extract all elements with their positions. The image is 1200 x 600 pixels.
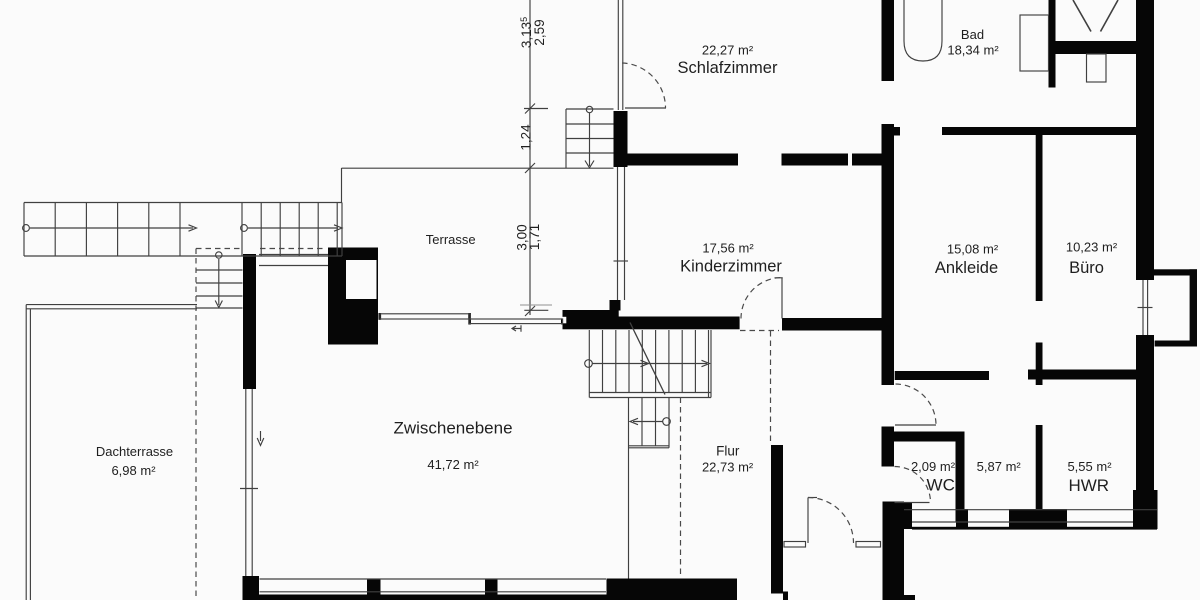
svg-text:2,09 m²: 2,09 m² bbox=[911, 459, 956, 474]
svg-text:Terrasse: Terrasse bbox=[426, 232, 476, 247]
svg-text:6,98 m²: 6,98 m² bbox=[111, 463, 156, 478]
svg-text:22,73 m²: 22,73 m² bbox=[702, 459, 754, 474]
svg-text:Dachterrasse: Dachterrasse bbox=[96, 444, 173, 459]
svg-text:10,23 m²: 10,23 m² bbox=[1066, 240, 1118, 255]
svg-text:15,08 m²: 15,08 m² bbox=[947, 241, 999, 256]
svg-text:5,55 m²: 5,55 m² bbox=[1067, 459, 1112, 474]
svg-text:Bad: Bad bbox=[961, 27, 984, 42]
svg-text:Schlafzimmer: Schlafzimmer bbox=[678, 59, 778, 77]
svg-text:2,59: 2,59 bbox=[532, 19, 547, 45]
svg-text:Büro: Büro bbox=[1069, 259, 1104, 277]
svg-text:Flur: Flur bbox=[716, 444, 740, 459]
svg-text:1,71: 1,71 bbox=[527, 224, 542, 250]
svg-text:22,27 m²: 22,27 m² bbox=[702, 43, 754, 58]
svg-text:Kinderzimmer: Kinderzimmer bbox=[680, 258, 782, 276]
svg-text:WC: WC bbox=[927, 476, 955, 495]
svg-text:HWR: HWR bbox=[1068, 476, 1109, 495]
svg-text:1,24: 1,24 bbox=[519, 124, 534, 151]
svg-text:Ankleide: Ankleide bbox=[935, 259, 998, 277]
svg-text:5,87 m²: 5,87 m² bbox=[977, 459, 1022, 474]
svg-text:17,56 m²: 17,56 m² bbox=[702, 241, 754, 256]
svg-text:41,72 m²: 41,72 m² bbox=[427, 457, 479, 472]
svg-text:18,34 m²: 18,34 m² bbox=[947, 43, 999, 58]
svg-text:Zwischenebene: Zwischenebene bbox=[393, 419, 512, 438]
